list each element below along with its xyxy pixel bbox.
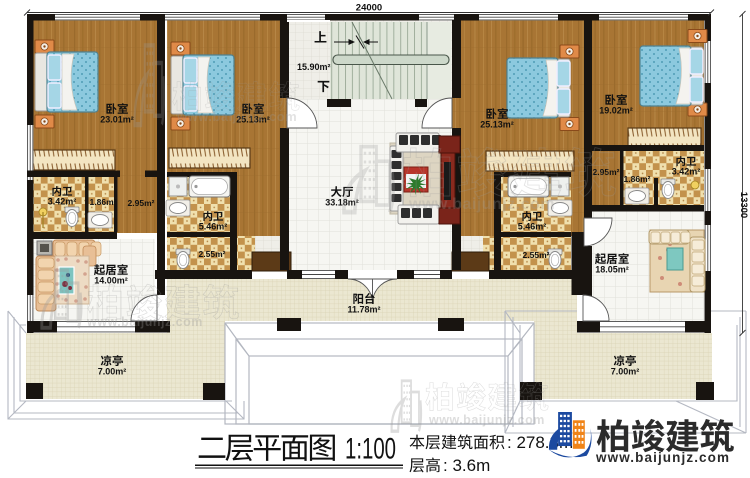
svg-text:www.baijunjz.com: www.baijunjz.com (595, 450, 730, 465)
svg-text:7.00m²: 7.00m² (98, 367, 127, 377)
svg-text:3.42m²: 3.42m² (672, 167, 701, 177)
svg-text:www.baijunjz.com: www.baijunjz.com (428, 413, 545, 427)
svg-text:1:100: 1:100 (345, 433, 396, 466)
svg-text:www.baijunjz.com: www.baijunjz.com (408, 196, 555, 213)
svg-text:: 3.6m: : 3.6m (443, 456, 490, 475)
svg-text:23.01m²: 23.01m² (100, 115, 134, 125)
svg-text:19.02m²: 19.02m² (599, 106, 633, 116)
svg-text:13300: 13300 (738, 192, 749, 218)
svg-text:18.05m²: 18.05m² (595, 265, 629, 275)
svg-text:2.55m²: 2.55m² (199, 249, 226, 259)
svg-text:24000: 24000 (356, 3, 382, 14)
svg-text:7.00m²: 7.00m² (611, 367, 640, 377)
svg-text:25.13m²: 25.13m² (480, 120, 514, 130)
svg-text:3.42m²: 3.42m² (48, 197, 77, 207)
svg-text:www.baijunjz.com: www.baijunjz.com (176, 109, 297, 124)
svg-text:2.95m²: 2.95m² (128, 198, 155, 208)
svg-text:5.46m²: 5.46m² (518, 222, 547, 232)
svg-text:www.baijunjz.com: www.baijunjz.com (86, 315, 203, 329)
svg-text:2.55m²: 2.55m² (523, 250, 550, 260)
svg-text:1.86m²: 1.86m² (90, 197, 117, 207)
svg-text:15.90m²: 15.90m² (297, 62, 331, 72)
svg-text:5.46m²: 5.46m² (199, 222, 228, 232)
svg-text:1.86m²: 1.86m² (624, 174, 651, 184)
svg-text:14.00m²: 14.00m² (94, 276, 128, 286)
svg-text:11.78m²: 11.78m² (347, 305, 380, 315)
